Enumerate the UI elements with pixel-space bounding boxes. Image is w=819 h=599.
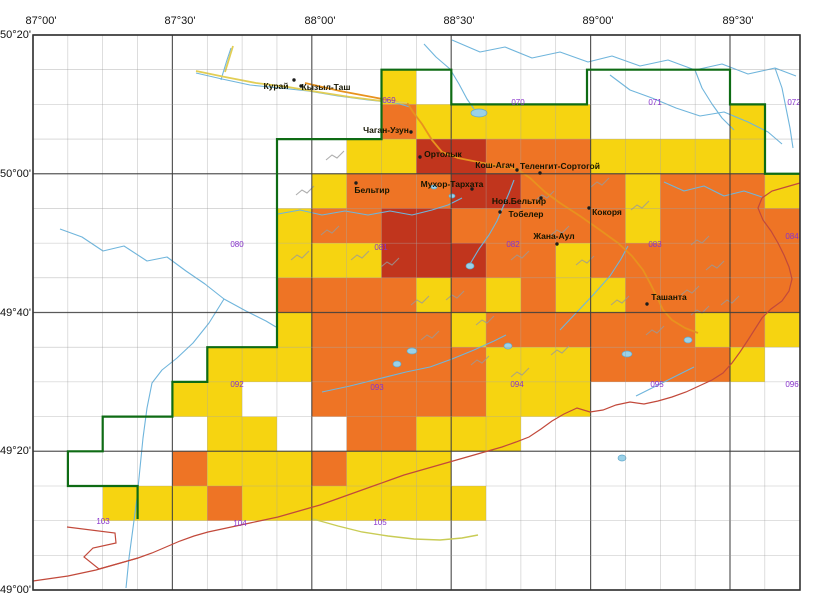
- river-path: [775, 68, 793, 148]
- heat-cell: [695, 174, 730, 209]
- heat-cell: [556, 382, 591, 417]
- heat-cell: [312, 486, 347, 521]
- heat-cell: [416, 313, 451, 348]
- heat-cell: [312, 313, 347, 348]
- village-dot: [418, 155, 421, 158]
- heat-cell: [486, 104, 521, 139]
- place-label: Чаган-Узун: [363, 125, 409, 135]
- heat-cell: [277, 313, 312, 348]
- heat-cell: [451, 208, 486, 243]
- heat-cell: [416, 486, 451, 521]
- heat-cell: [521, 313, 556, 348]
- heat-cell: [591, 347, 626, 382]
- sheet-number: 092: [230, 380, 244, 389]
- latitude-label: 50°20': [0, 29, 31, 41]
- sheet-number: 083: [648, 240, 662, 249]
- heat-cell: [312, 278, 347, 313]
- place-label: Ортолык: [424, 149, 462, 159]
- heat-cell: [730, 347, 765, 382]
- heat-cell: [207, 486, 242, 521]
- heat-cell: [382, 382, 417, 417]
- heat-cell: [207, 451, 242, 486]
- heat-cell: [451, 243, 486, 278]
- heat-cell: [416, 347, 451, 382]
- heat-cell: [382, 278, 417, 313]
- sheet-number: 103: [96, 517, 110, 526]
- terrain-mark: [326, 151, 344, 160]
- heat-cell: [207, 417, 242, 452]
- heat-cell: [451, 278, 486, 313]
- heat-cell: [695, 139, 730, 174]
- village-dot: [515, 168, 518, 171]
- heat-cell: [625, 174, 660, 209]
- longitude-label: 87°00': [26, 15, 57, 27]
- heat-cell: [451, 382, 486, 417]
- heat-cell: [730, 313, 765, 348]
- heat-cell: [730, 208, 765, 243]
- heat-cell: [591, 313, 626, 348]
- map-svg: 0690700710720800810820830840920930940950…: [0, 0, 819, 599]
- heat-cell: [591, 278, 626, 313]
- heat-cell: [451, 313, 486, 348]
- river-path: [424, 44, 474, 109]
- heat-cell: [486, 278, 521, 313]
- lake: [393, 361, 401, 367]
- heat-cell: [347, 278, 382, 313]
- village-dot: [538, 171, 541, 174]
- heat-cell: [103, 486, 138, 521]
- heat-cell: [695, 347, 730, 382]
- river-path: [695, 70, 734, 130]
- heat-cell: [242, 486, 277, 521]
- heat-cell: [521, 278, 556, 313]
- heat-cell: [695, 208, 730, 243]
- latitude-label: 49°20': [0, 445, 31, 457]
- heat-cell: [382, 139, 417, 174]
- map-page: 0690700710720800810820830840920930940950…: [0, 0, 819, 599]
- heat-cell: [242, 347, 277, 382]
- sheet-number: 082: [506, 240, 520, 249]
- latitude-label: 50°00': [0, 168, 31, 180]
- heat-cell: [521, 347, 556, 382]
- heat-cell: [660, 208, 695, 243]
- place-label: Кызыл-Таш: [302, 82, 351, 92]
- heat-cell: [416, 451, 451, 486]
- heat-cell: [660, 347, 695, 382]
- place-label: Курай: [264, 81, 289, 91]
- heat-cell: [765, 278, 800, 313]
- heat-cell: [660, 174, 695, 209]
- longitude-label: 88°30': [444, 15, 475, 27]
- heat-cell: [416, 382, 451, 417]
- heat-cell: [556, 243, 591, 278]
- heat-cell: [312, 347, 347, 382]
- place-label: Теленгит-Сортогой: [520, 161, 600, 171]
- heat-cell: [382, 417, 417, 452]
- heat-cell: [277, 347, 312, 382]
- heat-cell: [172, 382, 207, 417]
- lake: [466, 263, 474, 269]
- village-dot: [409, 130, 412, 133]
- heat-cell: [625, 208, 660, 243]
- heat-cell: [312, 243, 347, 278]
- heat-cell: [382, 313, 417, 348]
- heat-cell: [416, 208, 451, 243]
- heat-cell: [242, 451, 277, 486]
- heat-cell: [172, 451, 207, 486]
- heat-cell: [312, 451, 347, 486]
- heat-cell: [277, 243, 312, 278]
- heat-cell: [556, 104, 591, 139]
- lake: [504, 343, 512, 349]
- sheet-number: 084: [785, 232, 799, 241]
- place-label: Ташанта: [651, 292, 687, 302]
- heat-cell: [660, 243, 695, 278]
- heat-cell: [382, 486, 417, 521]
- sheet-number: 070: [511, 98, 525, 107]
- place-label: Бельтир: [354, 185, 389, 195]
- longitude-label: 89°00': [583, 15, 614, 27]
- heat-cell: [312, 382, 347, 417]
- place-label: Нов.Бельтир: [492, 196, 546, 206]
- road-path: [225, 46, 233, 72]
- heat-cell: [695, 313, 730, 348]
- heat-cell: [382, 208, 417, 243]
- lake: [622, 351, 632, 357]
- heat-cell: [347, 486, 382, 521]
- heat-cell: [416, 243, 451, 278]
- heat-cell: [486, 347, 521, 382]
- longitude-label: 89°30': [723, 15, 754, 27]
- heat-cell: [695, 278, 730, 313]
- sheet-number: 094: [510, 380, 524, 389]
- lake: [684, 337, 692, 343]
- latitude-label: 49°40': [0, 307, 31, 319]
- heat-cell: [347, 451, 382, 486]
- latitude-label: 49°00': [0, 584, 31, 596]
- lake: [407, 348, 417, 354]
- heat-cell: [347, 313, 382, 348]
- lake: [471, 109, 487, 117]
- longitude-label: 88°00': [305, 15, 336, 27]
- heat-cell: [416, 417, 451, 452]
- heat-cell: [625, 313, 660, 348]
- heat-cell: [765, 243, 800, 278]
- place-label: Кош-Агач: [475, 160, 514, 170]
- sheet-number: 072: [787, 98, 801, 107]
- village-dot: [555, 242, 558, 245]
- sheet-number: 071: [648, 98, 662, 107]
- sheet-number: 081: [374, 243, 388, 252]
- village-dot: [587, 206, 590, 209]
- heat-cell: [416, 278, 451, 313]
- heat-cell: [765, 174, 800, 209]
- heat-cell: [416, 104, 451, 139]
- heat-cell: [172, 486, 207, 521]
- sheet-number: 105: [373, 518, 387, 527]
- village-dot: [498, 210, 501, 213]
- heat-cell: [347, 139, 382, 174]
- heat-cell: [695, 243, 730, 278]
- sheet-number: 093: [370, 383, 384, 392]
- heat-cell: [242, 417, 277, 452]
- village-dot: [292, 78, 295, 81]
- heat-cell: [765, 313, 800, 348]
- heat-cell: [312, 174, 347, 209]
- heat-cell: [521, 104, 556, 139]
- heat-cell: [138, 486, 173, 521]
- heat-cell: [347, 417, 382, 452]
- sheet-number: 096: [785, 380, 799, 389]
- heat-cell: [556, 278, 591, 313]
- heat-cell: [660, 139, 695, 174]
- place-label: Тобелер: [508, 209, 543, 219]
- heat-cell: [347, 347, 382, 382]
- river-path: [221, 48, 231, 80]
- admin-boundary-line: [313, 519, 478, 540]
- place-label: Мухор-Тархата: [421, 179, 484, 189]
- lake: [618, 455, 626, 461]
- heat-cell: [730, 278, 765, 313]
- heat-cell: [277, 278, 312, 313]
- heat-cell: [521, 382, 556, 417]
- sheet-number: 095: [650, 380, 664, 389]
- heat-cell: [556, 313, 591, 348]
- sheet-number: 069: [382, 96, 396, 105]
- heat-cell: [277, 451, 312, 486]
- heat-cell: [451, 417, 486, 452]
- longitude-label: 87°30': [165, 15, 196, 27]
- heat-cell: [207, 347, 242, 382]
- sheet-number: 080: [230, 240, 244, 249]
- sheet-number: 104: [233, 519, 247, 528]
- heat-cell: [451, 486, 486, 521]
- heat-cell: [625, 139, 660, 174]
- heat-cell: [521, 243, 556, 278]
- lake: [449, 194, 455, 198]
- place-label: Жана-Аул: [532, 231, 574, 241]
- village-dot: [645, 302, 648, 305]
- heat-cell: [730, 243, 765, 278]
- heat-cell: [730, 139, 765, 174]
- place-label: Кокоря: [592, 207, 622, 217]
